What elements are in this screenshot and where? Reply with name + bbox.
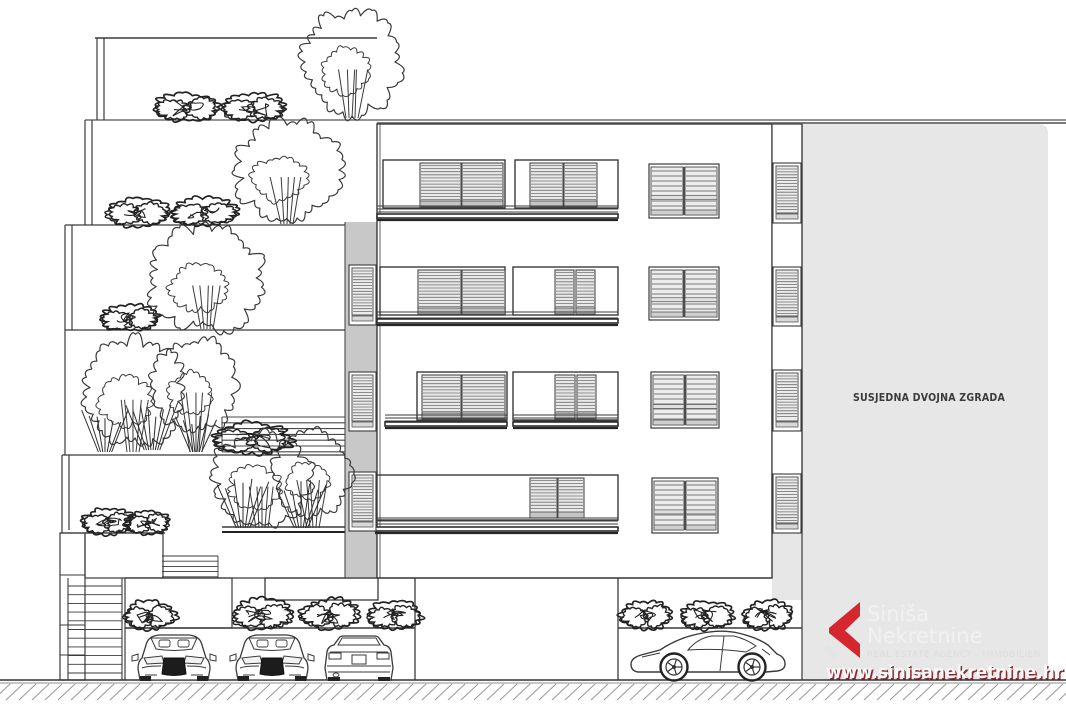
logo-name-line1: Siniša <box>867 602 929 626</box>
shutter-leaf <box>654 481 684 530</box>
balcony-louver-door <box>462 163 503 207</box>
rect <box>577 375 596 419</box>
window-sill <box>685 210 717 215</box>
window-sill <box>686 420 717 425</box>
balcony-louver-door <box>530 163 563 207</box>
window-sill <box>686 525 716 530</box>
balcony-slab <box>385 422 507 426</box>
window-sill <box>651 210 683 215</box>
logo-name-line2: Nekretnine <box>867 624 983 648</box>
balcony-louver-door <box>576 270 595 314</box>
narrow-louver-window <box>349 372 376 431</box>
narrow-louver-window <box>349 472 376 531</box>
shutter-leaf <box>653 375 684 425</box>
narrow-louver-window <box>773 163 801 223</box>
shutter-leaf <box>686 481 716 530</box>
window-sill <box>352 522 373 527</box>
rect <box>418 270 461 314</box>
door-sill <box>418 308 461 314</box>
door-sill <box>462 308 505 314</box>
rect <box>555 270 574 314</box>
wheel <box>295 676 306 681</box>
grille <box>260 658 284 676</box>
shutter-mid-rail <box>651 298 683 302</box>
shutter-leaf <box>686 375 717 425</box>
shutter-mid-rail <box>653 404 684 408</box>
balcony-louver-door <box>555 375 575 419</box>
balcony-louver-door <box>462 375 505 419</box>
wheel <box>140 676 151 681</box>
shuttered-window <box>652 478 718 533</box>
wheel <box>197 676 208 681</box>
window-sill <box>352 422 373 427</box>
rect <box>420 163 461 207</box>
window-sill <box>776 214 798 219</box>
door-sill <box>558 512 584 518</box>
shutter-mid-rail <box>685 195 717 199</box>
wheel-hub <box>672 665 676 669</box>
window-sill <box>654 525 684 530</box>
shutter-mid-rail <box>686 404 717 408</box>
balcony-louver-door <box>555 270 574 314</box>
elevation-drawing-canvas: SUSJEDNA DVOJNA ZGRADA Siniša Nekretnine… <box>0 0 1066 720</box>
rect <box>462 163 503 207</box>
rect <box>422 375 461 419</box>
window-sill <box>653 420 684 425</box>
narrow-louver-window <box>773 370 801 431</box>
logo-tagline: REAL ESTATE AGENCY - IMMOBILIEN <box>867 650 1041 660</box>
window-sill <box>352 316 373 321</box>
door-sill <box>555 308 574 314</box>
wheel <box>238 676 249 681</box>
door-sill <box>576 308 595 314</box>
shutter-mid-rail <box>686 510 716 514</box>
balcony-slab <box>375 527 618 531</box>
entry-canopy <box>265 578 378 600</box>
rect <box>555 375 575 419</box>
rect <box>564 163 597 207</box>
balcony-louver-door <box>530 478 557 518</box>
balcony-louver-door <box>558 478 584 518</box>
headlight <box>282 656 302 664</box>
wheel <box>378 677 390 681</box>
window-sill <box>776 524 798 529</box>
narrow-louver-window <box>773 474 801 533</box>
neighbor-building: SUSJEDNA DVOJNA ZGRADA <box>772 124 1048 680</box>
shuttered-window <box>651 372 719 428</box>
balcony-slab <box>513 422 618 426</box>
balcony-louver-door <box>422 375 461 419</box>
sedan-rear <box>325 636 393 681</box>
narrow-louver-window <box>773 267 801 326</box>
neighbor-building-lower-extension <box>772 533 802 600</box>
door-sill <box>530 512 557 518</box>
shutter-leaf <box>651 270 683 317</box>
neighbor-building-label: SUSJEDNA DVOJNA ZGRADA <box>853 391 1005 404</box>
shutter-mid-rail <box>685 298 717 302</box>
shutter-mid-rail <box>651 195 683 199</box>
window-sill <box>776 422 798 427</box>
rect <box>576 270 595 314</box>
logo-website: www.sinisanekretnine.hr <box>826 662 1063 683</box>
balcony-louver-door <box>577 375 596 419</box>
rect <box>462 375 505 419</box>
window-sill <box>651 312 683 317</box>
shuttered-window <box>649 164 719 218</box>
rect <box>530 163 563 207</box>
balcony-louver-door <box>462 270 505 314</box>
balcony-slab <box>377 214 618 218</box>
rect <box>462 270 505 314</box>
building-elevation: SUSJEDNA DVOJNA ZGRADA Siniša Nekretnine… <box>0 0 1066 720</box>
balcony-louver-door <box>420 163 461 207</box>
headlight <box>242 656 262 664</box>
headlight <box>184 656 204 664</box>
window-sill <box>776 317 798 322</box>
window-sill <box>685 312 717 317</box>
wheel <box>328 677 340 681</box>
shutter-mid-rail <box>654 510 684 514</box>
narrow-louver-window <box>349 265 376 325</box>
balcony-louver-door <box>418 270 461 314</box>
headlight <box>144 656 164 664</box>
shuttered-window <box>649 267 719 320</box>
wheel-hub <box>750 665 754 669</box>
balcony-louver-door <box>564 163 597 207</box>
shutter-leaf <box>685 270 717 317</box>
grille <box>162 658 186 676</box>
balcony-slab <box>377 319 618 323</box>
